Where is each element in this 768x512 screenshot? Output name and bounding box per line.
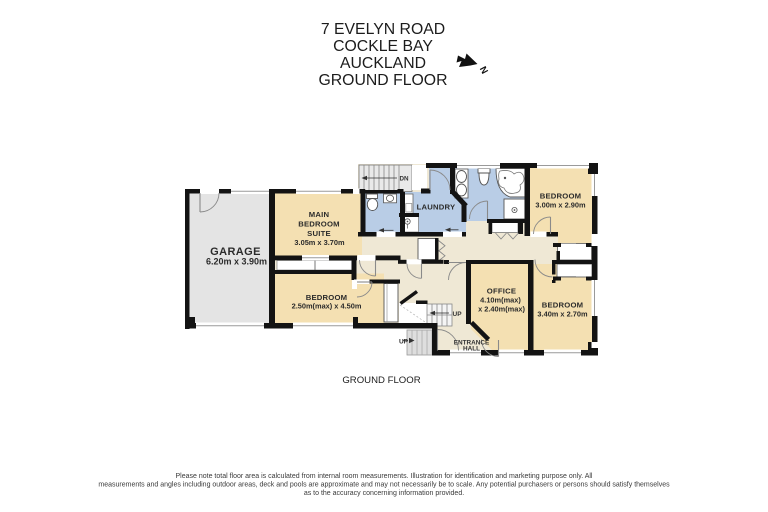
svg-text:OFFICE: OFFICE [487, 287, 516, 296]
svg-text:N: N [477, 65, 490, 76]
svg-text:AUCKLAND: AUCKLAND [340, 55, 426, 72]
svg-text:3.40m x 2.70m: 3.40m x 2.70m [537, 310, 588, 319]
svg-text:BEDROOM: BEDROOM [298, 220, 340, 229]
svg-text:7 EVELYN ROAD: 7 EVELYN ROAD [321, 21, 445, 38]
svg-text:3.00m x 2.90m: 3.00m x 2.90m [535, 201, 586, 210]
svg-text:LAUNDRY: LAUNDRY [417, 203, 456, 212]
svg-text:GROUND FLOOR: GROUND FLOOR [318, 72, 447, 89]
svg-text:2.50m(max) x 4.50m: 2.50m(max) x 4.50m [292, 302, 362, 311]
svg-text:HALL: HALL [463, 346, 480, 353]
svg-text:DN: DN [400, 176, 410, 183]
svg-text:3.05m x 3.70m: 3.05m x 3.70m [294, 238, 345, 247]
svg-text:Please note total floor area i: Please note total floor area is calculat… [176, 473, 593, 480]
svg-text:x 2.40m(max): x 2.40m(max) [478, 305, 525, 314]
svg-text:SUITE: SUITE [307, 229, 331, 238]
svg-text:BEDROOM: BEDROOM [542, 301, 584, 310]
svg-text:UP: UP [453, 311, 463, 318]
svg-text:MAIN: MAIN [309, 210, 330, 219]
svg-text:as to the accuracy concerning: as to the accuracy concerning informatio… [304, 490, 464, 497]
svg-text:BEDROOM: BEDROOM [540, 192, 582, 201]
svg-text:6.20m x 3.90m: 6.20m x 3.90m [206, 257, 267, 267]
svg-text:4.10m(max): 4.10m(max) [480, 296, 521, 305]
svg-text:GROUND FLOOR: GROUND FLOOR [342, 375, 420, 386]
svg-text:measurements and angles includ: measurements and angles including outdoo… [98, 482, 670, 489]
svg-text:COCKLE BAY: COCKLE BAY [333, 38, 433, 55]
svg-text:UP: UP [399, 339, 409, 346]
